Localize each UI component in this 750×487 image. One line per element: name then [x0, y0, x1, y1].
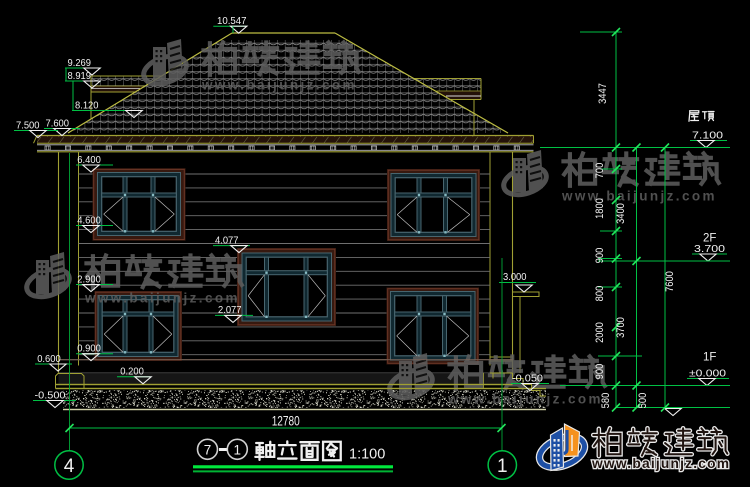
- svg-text:4: 4: [64, 456, 75, 477]
- svg-text:2F: 2F: [703, 233, 716, 245]
- svg-text:3400: 3400: [615, 203, 627, 224]
- svg-text:±0.000: ±0.000: [689, 368, 726, 379]
- svg-text:www.baijunjz.com: www.baijunjz.com: [201, 78, 357, 93]
- svg-text:8.919: 8.919: [68, 71, 92, 82]
- svg-text:1F: 1F: [703, 352, 716, 364]
- svg-text:1: 1: [234, 442, 242, 457]
- svg-text:-0.500: -0.500: [35, 390, 66, 401]
- svg-text:4.600: 4.600: [77, 215, 101, 226]
- svg-text:580: 580: [600, 393, 612, 409]
- svg-text:7600: 7600: [664, 271, 676, 292]
- svg-text:10.547: 10.547: [217, 16, 247, 27]
- svg-text:2.900: 2.900: [77, 274, 101, 285]
- svg-text:-0.050: -0.050: [512, 373, 543, 384]
- svg-text:www.baijunjz.com: www.baijunjz.com: [84, 291, 240, 306]
- svg-text:2000: 2000: [594, 322, 606, 343]
- svg-text:12780: 12780: [272, 412, 300, 428]
- svg-text:2.077: 2.077: [218, 305, 242, 316]
- svg-text:1800: 1800: [594, 198, 606, 219]
- svg-text:3.000: 3.000: [503, 272, 527, 283]
- svg-text:0.900: 0.900: [77, 344, 101, 355]
- svg-text:1: 1: [497, 456, 508, 477]
- svg-text:0.600: 0.600: [37, 354, 61, 365]
- svg-text:4.077: 4.077: [215, 235, 239, 246]
- svg-text:7.600: 7.600: [46, 118, 70, 129]
- svg-text:7.100: 7.100: [692, 130, 723, 141]
- svg-text:800: 800: [594, 286, 606, 302]
- svg-text:900: 900: [594, 364, 606, 380]
- svg-text:7.500: 7.500: [16, 120, 40, 131]
- svg-text:3447: 3447: [597, 83, 609, 104]
- svg-text:900: 900: [594, 248, 606, 264]
- svg-text:www.baijunjz.com: www.baijunjz.com: [561, 189, 717, 204]
- svg-text:www.baijunjz.com: www.baijunjz.com: [447, 392, 603, 407]
- svg-text:7: 7: [204, 442, 212, 457]
- svg-text:8.120: 8.120: [75, 100, 99, 111]
- svg-text:6.400: 6.400: [77, 155, 101, 166]
- svg-text:3.700: 3.700: [694, 244, 725, 255]
- svg-text:1:100: 1:100: [349, 447, 385, 463]
- svg-text:700: 700: [594, 163, 606, 179]
- svg-text:3700: 3700: [615, 317, 627, 338]
- svg-text:9.269: 9.269: [68, 58, 92, 69]
- svg-text:500: 500: [637, 393, 649, 409]
- svg-text:0.200: 0.200: [120, 367, 144, 378]
- svg-text:www.baijunjz.com: www.baijunjz.com: [591, 456, 730, 471]
